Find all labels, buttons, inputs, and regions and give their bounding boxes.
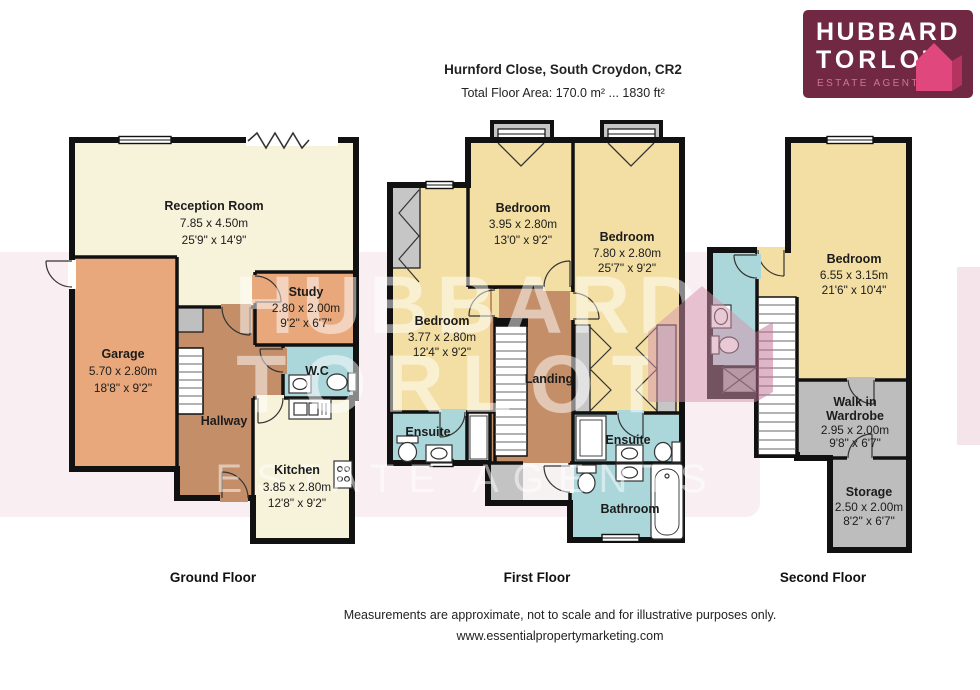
label-reception: Reception Room [164,199,263,213]
door-gap [847,455,873,462]
dim-metric: 5.70 x 2.80m [89,364,157,378]
dim-imperial: 18'8" x 9'2" [94,381,152,395]
label-storage: Storage [846,485,893,499]
door-gap [847,377,875,384]
label-walkin-1: Walk in [833,395,876,409]
dim-metric: 2.95 x 2.00m [821,423,889,437]
label-walkin-2: Wardrobe [826,409,884,423]
label-bedroom-second: Bedroom [827,252,882,266]
label-kitchen: Kitchen [274,463,320,477]
label-ensuite-right: Ensuite [605,433,650,447]
dim-metric: 2.80 x 2.00m [272,301,340,315]
dim-imperial: 25'9" x 14'9" [182,233,247,247]
dim-imperial: 25'7" x 9'2" [598,261,656,275]
door-gap [757,247,785,254]
disclaimer-text: Measurements are approximate, not to sca… [344,608,777,622]
cupboard [178,308,203,332]
floorplan-page: Hurnford Close, South Croydon, CR2 Total… [0,0,980,690]
dim-imperial: 13'0" x 9'2" [494,233,552,247]
label-bedroom-left: Bedroom [415,314,470,328]
dim-metric: 3.95 x 2.80m [489,217,557,231]
label-bathroom: Bathroom [600,502,659,516]
watermark-house-side [756,322,773,402]
dim-imperial: 9'8" x 6'7" [829,436,881,450]
dim-imperial: 12'4" x 9'2" [413,345,471,359]
label-bedroom-right: Bedroom [600,230,655,244]
label-wc: W.C [305,364,329,378]
dim-imperial: 21'6" x 10'4" [822,283,887,297]
second-floor-label: Second Floor [780,570,867,585]
watermark-edge [957,267,980,445]
door-gap [68,260,76,289]
label-landing: Landing [525,372,574,386]
ground-floor-label: Ground Floor [170,570,257,585]
dim-metric: 6.55 x 3.15m [820,268,888,282]
marketing-url: www.essentialpropertymarketing.com [456,629,663,643]
label-study: Study [289,285,324,299]
dim-metric: 7.85 x 4.50m [180,216,248,230]
label-bedroom-middle: Bedroom [496,201,551,215]
dim-metric: 3.77 x 2.80m [408,330,476,344]
dim-imperial: 9'2" x 6'7" [280,316,332,330]
first-floor-label: First Floor [504,570,571,585]
dim-imperial: 8'2" x 6'7" [843,514,895,528]
floorplan-drawing: HUBBARD TORLOT ESTATE AGENTS Reception R… [0,0,980,690]
closet [391,187,420,268]
dim-metric: 2.50 x 2.00m [835,500,903,514]
label-ensuite-left: Ensuite [405,425,450,439]
dim-metric: 7.80 x 2.80m [593,246,661,260]
dim-imperial: 12'8" x 9'2" [268,496,326,510]
door-gap [754,254,761,279]
room-garage [72,257,177,469]
label-hallway: Hallway [201,414,248,428]
label-garage: Garage [101,347,144,361]
dim-metric: 3.85 x 2.80m [263,480,331,494]
